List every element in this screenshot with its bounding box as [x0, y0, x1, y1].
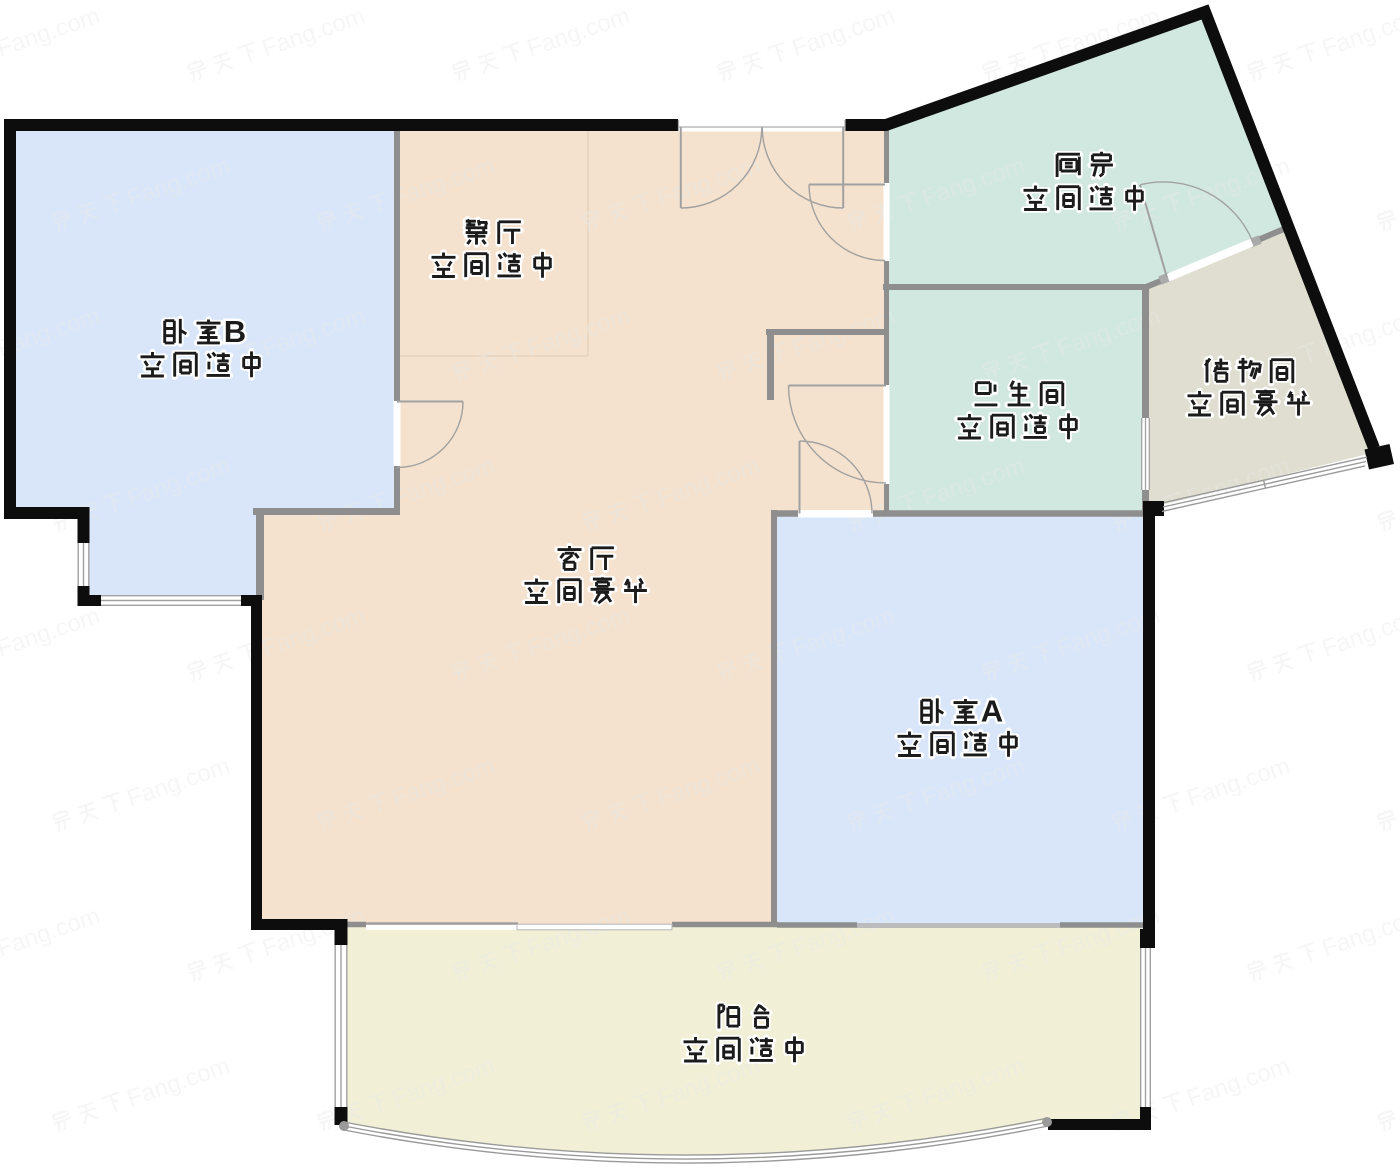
- svg-text:A: A: [981, 694, 1003, 729]
- svg-text:B: B: [224, 314, 246, 349]
